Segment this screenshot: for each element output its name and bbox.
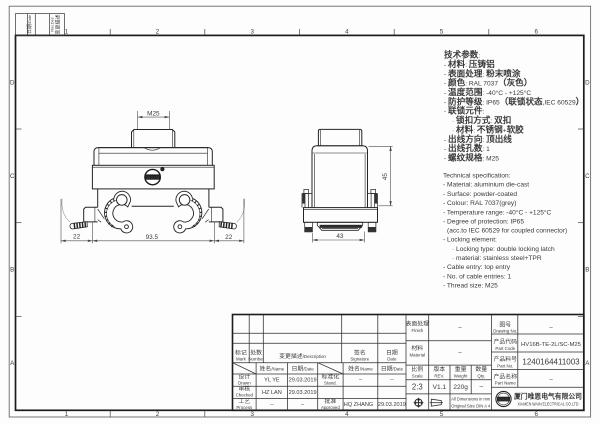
svg-text:图号: 图号	[499, 321, 511, 328]
svg-text:标记: 标记	[235, 348, 247, 356]
svg-text:Checked: Checked	[236, 393, 254, 398]
svg-text:–: –	[479, 384, 483, 391]
svg-text:Finish: Finish	[411, 328, 423, 333]
svg-text:22: 22	[225, 234, 233, 241]
svg-text:日期/Date: 日期/Date	[292, 364, 315, 372]
svg-text:- No. of cable entries: 1: - No. of cable entries: 1	[443, 273, 512, 280]
svg-text:Process: Process	[236, 405, 253, 410]
svg-text:1240164411003: 1240164411003	[522, 357, 580, 366]
svg-text:Part Name: Part Name	[495, 381, 517, 386]
svg-text:姓名/Name: 姓名/Name	[348, 364, 373, 372]
svg-text:(acc.to IEC 60529 for coupled: (acc.to IEC 60529 for coupled connector)	[447, 227, 567, 234]
svg-text:- Colour: RAL 7037(grey): - Colour: RAL 7037(grey)	[443, 200, 516, 207]
svg-text:签名: 签名	[354, 348, 366, 356]
svg-text:A: A	[585, 360, 590, 367]
svg-text:–: –	[359, 377, 363, 383]
svg-text:技术参数:: 技术参数:	[444, 49, 480, 60]
svg-text:–: –	[458, 351, 462, 357]
svg-text:- Degree of protection: IP65: - Degree of protection: IP65	[443, 219, 524, 226]
svg-text:43: 43	[336, 233, 344, 240]
svg-text:WAIN: WAIN	[146, 175, 159, 180]
svg-text:产品代码: 产品代码	[494, 338, 518, 346]
svg-text:产品名称: 产品名称	[494, 372, 518, 380]
svg-text:HV16B-TE-2L/SC-M25: HV16B-TE-2L/SC-M25	[521, 342, 582, 348]
svg-text:WAIN: WAIN	[498, 397, 510, 402]
svg-text:6: 6	[534, 411, 538, 418]
svg-text:变更描述: 变更描述	[55, 14, 62, 34]
svg-text:- 螺纹规格: M25: - 螺纹规格: M25	[444, 152, 499, 163]
svg-text:Weight: Weight	[454, 374, 468, 379]
svg-text:4: 4	[345, 411, 349, 418]
svg-text:产品料号: 产品料号	[494, 355, 518, 363]
svg-text:–: –	[549, 325, 553, 331]
svg-text:日期: 日期	[386, 348, 398, 356]
svg-text:5: 5	[440, 411, 444, 418]
svg-text:Part No.: Part No.	[497, 363, 513, 368]
svg-text:HQ ZHANG: HQ ZHANG	[344, 402, 374, 408]
svg-text:Approved: Approved	[321, 405, 340, 410]
svg-text:Drawn: Drawn	[238, 380, 251, 385]
svg-text:- Thread size: M25: - Thread size: M25	[443, 283, 498, 290]
svg-text:工艺: 工艺	[238, 397, 250, 405]
svg-text:- Temperature range: -40°C - +: - Temperature range: -40°C - +125°C	[443, 208, 552, 216]
svg-text:表面处理: 表面处理	[406, 320, 430, 328]
svg-text:1: 1	[65, 411, 69, 418]
svg-text:批准: 批准	[325, 397, 337, 405]
svg-text:- 联锁元件:: - 联锁元件:	[444, 105, 484, 116]
svg-text:V1.1: V1.1	[433, 384, 447, 391]
svg-text:标准化: 标准化	[322, 372, 340, 380]
svg-text:Part Code: Part Code	[495, 346, 515, 351]
svg-text:材料: 材料	[411, 344, 423, 352]
svg-text:B: B	[10, 267, 14, 274]
svg-text:3: 3	[250, 411, 254, 418]
svg-text:审核: 审核	[238, 385, 250, 393]
svg-text:6: 6	[534, 29, 538, 36]
svg-text:D: D	[10, 80, 15, 87]
svg-text:D: D	[585, 80, 590, 87]
svg-text:220g: 220g	[453, 384, 468, 391]
svg-text:2:3: 2:3	[412, 383, 423, 392]
svg-text:Date: Date	[387, 356, 397, 361]
svg-text:22: 22	[73, 234, 81, 241]
svg-text:厦门唯恩电气有限公司: 厦门唯恩电气有限公司	[513, 391, 582, 400]
svg-text:- Locking element:: - Locking element:	[443, 237, 497, 244]
svg-text:2: 2	[156, 29, 160, 36]
svg-text:Scale: Scale	[412, 374, 424, 379]
svg-text:Signature: Signature	[350, 356, 369, 361]
svg-text:Original Size DIN A 4: Original Size DIN A 4	[451, 403, 490, 408]
svg-text:Technical specification:: Technical specification:	[443, 173, 511, 180]
svg-text:设计: 设计	[238, 372, 250, 380]
svg-text:–: –	[301, 402, 305, 408]
svg-text:1: 1	[65, 29, 69, 36]
svg-text:–: –	[390, 377, 394, 383]
svg-text:Drawing No.: Drawing No.	[493, 328, 517, 333]
svg-text:C: C	[10, 173, 15, 180]
svg-text:93.5: 93.5	[146, 234, 159, 241]
svg-text:–: –	[549, 377, 553, 383]
svg-text:处数: 处数	[250, 348, 262, 356]
svg-text:–: –	[270, 402, 274, 408]
svg-text:29.03.2019: 29.03.2019	[289, 378, 317, 384]
svg-text:2: 2	[156, 411, 160, 418]
svg-text:REV.: REV.	[434, 374, 444, 379]
svg-text:比例: 比例	[411, 365, 423, 373]
svg-text:A: A	[10, 360, 15, 367]
svg-text:29.03.2019: 29.03.2019	[289, 390, 317, 396]
svg-text:数量: 数量	[475, 365, 487, 373]
svg-text:Rev.Des: Rev.Des	[50, 17, 54, 31]
svg-text:变更描述/Description: 变更描述/Description	[279, 352, 326, 360]
svg-text:· Locking type: double locking: · Locking type: double locking latch	[452, 246, 555, 253]
svg-text:重量: 重量	[455, 365, 467, 373]
svg-text:–: –	[458, 326, 462, 332]
svg-text:· material: stainless steel+TP: · material: stainless steel+TPR	[452, 255, 542, 262]
svg-text:Number: Number	[248, 356, 264, 361]
svg-text:YL YE: YL YE	[264, 378, 280, 384]
svg-text:29.03.2019: 29.03.2019	[378, 402, 406, 408]
svg-text:姓名/Name: 姓名/Name	[260, 364, 285, 372]
svg-text:Material: Material	[409, 352, 425, 357]
svg-text:Qty.: Qty.	[477, 374, 485, 379]
svg-text:- Material: aluminium die-cast: - Material: aluminium die-cast	[443, 182, 529, 189]
svg-text:日期/Date: 日期/Date	[381, 364, 404, 372]
svg-text:All Dimensions in mm: All Dimensions in mm	[451, 397, 490, 402]
svg-text:- Cable entry: top entry: - Cable entry: top entry	[443, 264, 511, 271]
svg-text:- Surface: powder-coated: - Surface: powder-coated	[443, 191, 517, 198]
svg-text:3: 3	[250, 29, 254, 36]
svg-text:4: 4	[345, 29, 349, 36]
svg-text:XIAMEN WAIN ELECTRICAL CO.LTD: XIAMEN WAIN ELECTRICAL CO.LTD	[518, 402, 579, 407]
svg-text:版本: 版本	[433, 365, 445, 373]
svg-text:B: B	[585, 267, 589, 274]
svg-text:Mark: Mark	[236, 356, 247, 361]
svg-text:HZ LAN: HZ LAN	[262, 390, 282, 396]
svg-text:M25: M25	[147, 110, 160, 117]
svg-text:C: C	[585, 173, 590, 180]
svg-text:日期/Date: 日期/Date	[27, 15, 33, 34]
svg-text:45: 45	[382, 173, 389, 181]
svg-text:R: R	[161, 167, 163, 171]
svg-text:Stand.: Stand.	[324, 380, 337, 385]
svg-text:5: 5	[440, 29, 444, 36]
svg-text:· 材料: 不锈钢+软胶: · 材料: 不锈钢+软胶	[452, 123, 524, 134]
